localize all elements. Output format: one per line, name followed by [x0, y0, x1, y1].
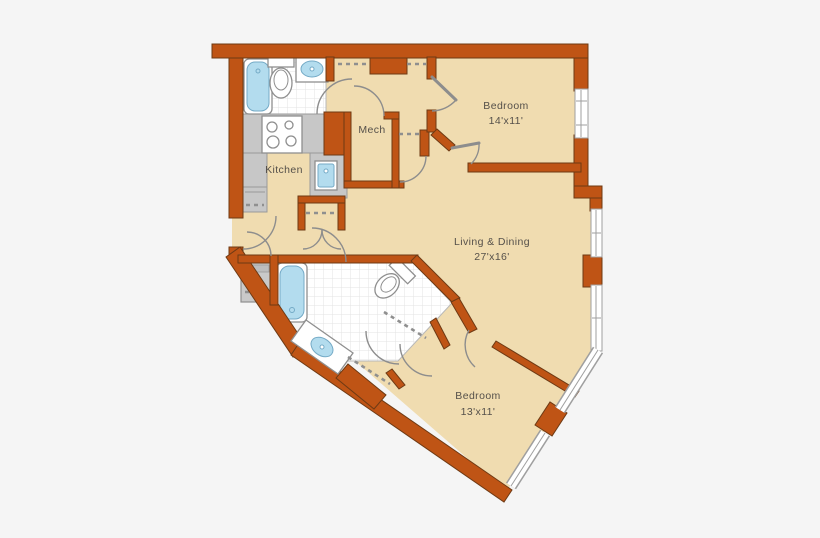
label-bedroom-top: Bedroom — [483, 100, 528, 112]
wall-mech-left — [344, 112, 351, 188]
toilet-top — [268, 56, 294, 98]
wall-mech-right — [392, 112, 399, 188]
stove — [262, 116, 302, 153]
window-living-lower — [591, 285, 602, 351]
label-bedroom-top-dims: 14'x11' — [489, 115, 524, 127]
wall-bedroom-top-bottom — [468, 163, 581, 172]
label-kitchen: Kitchen — [265, 164, 303, 176]
wall-left-upper — [229, 58, 243, 218]
kitchen-counter-left — [243, 153, 267, 187]
window-bedroom-top — [575, 89, 588, 138]
wall-top — [212, 44, 588, 58]
label-living-dims: 27'x16' — [474, 251, 509, 263]
vanity-sink-top — [296, 57, 328, 82]
wall-right-2 — [574, 135, 588, 188]
wall-top-column — [370, 58, 407, 74]
wall-right-jog — [574, 186, 602, 198]
label-mech: Mech — [358, 124, 385, 136]
wall-right-pier — [583, 255, 602, 287]
refrigerator — [243, 187, 267, 212]
label-bedroom-bottom-dims: 13'x11' — [461, 406, 496, 418]
wall-bedroom-top-left-b — [427, 110, 436, 132]
floor-plan-canvas: Bedroom 14'x11' Living & Dining 27'x16' … — [0, 0, 820, 538]
wall-bath-bottom-top — [238, 255, 418, 263]
wall-mech-top-stub — [384, 112, 399, 119]
label-bedroom-bottom: Bedroom — [455, 390, 500, 402]
wall-bath-top-right — [326, 57, 334, 81]
wall-washer-divider — [270, 255, 278, 305]
wall-pantry-top — [298, 196, 345, 203]
window-living-upper — [591, 209, 602, 257]
label-living: Living & Dining — [454, 236, 530, 248]
floor-plan: Bedroom 14'x11' Living & Dining 27'x16' … — [0, 0, 820, 538]
kitchen-sink — [315, 161, 337, 190]
wall-right-1 — [574, 58, 588, 91]
wall-closet-pier — [420, 130, 429, 156]
